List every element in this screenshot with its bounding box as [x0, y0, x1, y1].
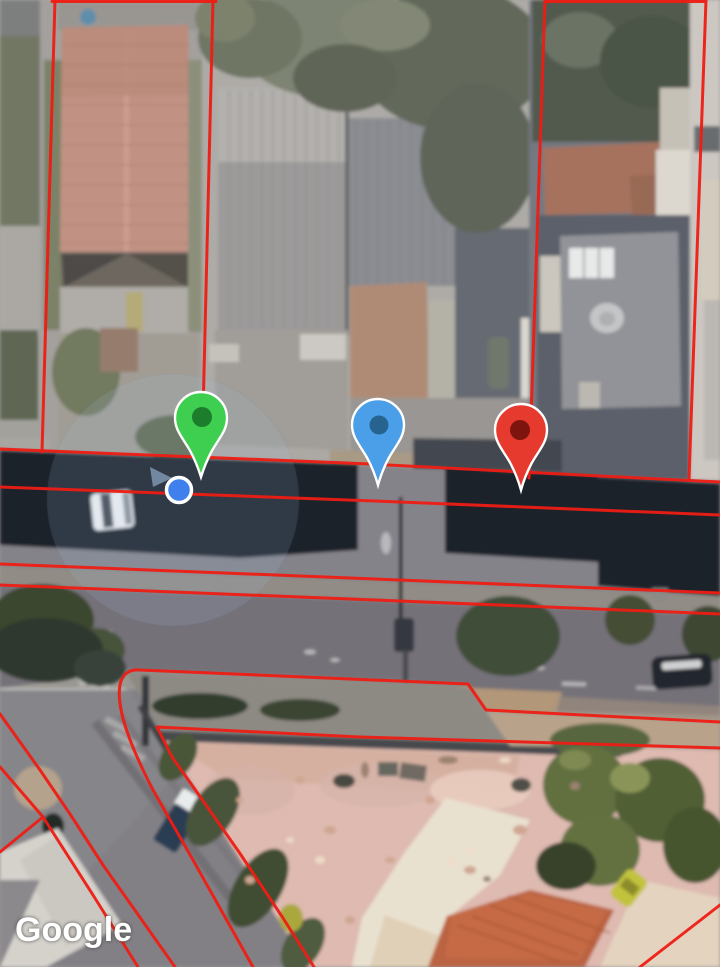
svg-text:Google: Google	[15, 911, 132, 949]
